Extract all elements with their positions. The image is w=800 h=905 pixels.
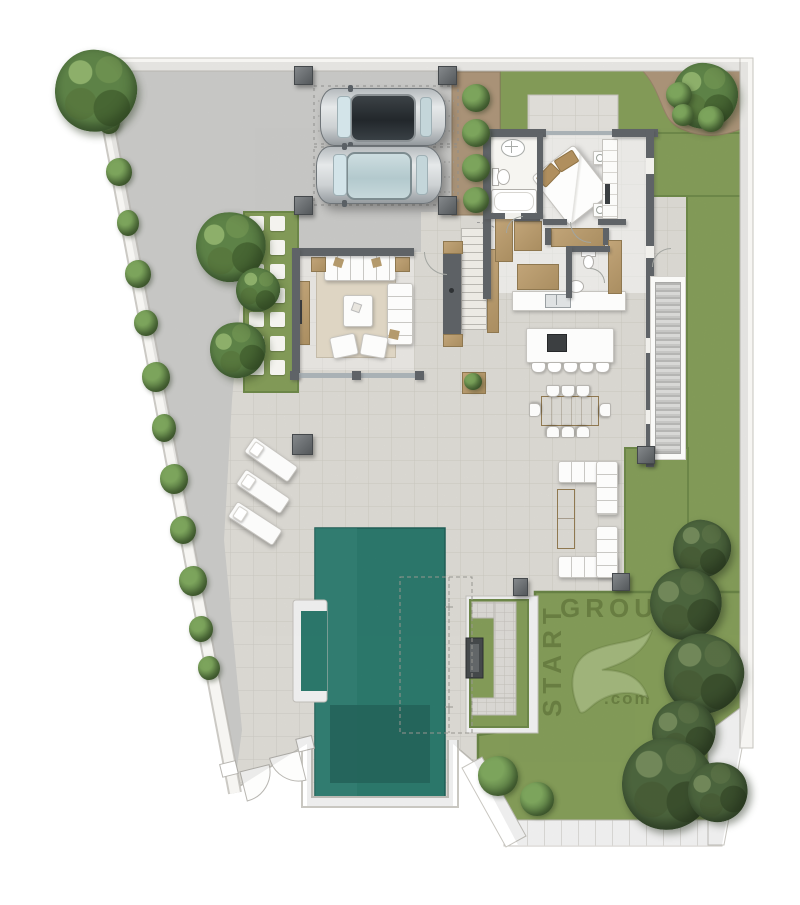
wc-west-wall bbox=[566, 246, 572, 298]
bedroom-tv bbox=[605, 184, 610, 204]
car-1 bbox=[320, 88, 446, 146]
hedge-bush bbox=[125, 260, 151, 288]
hedge-bush bbox=[117, 210, 139, 236]
carport-pillar bbox=[294, 196, 313, 215]
dining-chair bbox=[561, 426, 575, 438]
bathtub-inner bbox=[494, 192, 534, 211]
side-table bbox=[311, 257, 326, 272]
hedge-bush bbox=[152, 414, 176, 442]
toilet-bowl bbox=[497, 169, 510, 185]
patio-pillar bbox=[292, 434, 313, 455]
garden-bush bbox=[698, 106, 724, 132]
glass-wall-post bbox=[415, 371, 424, 380]
fireplace-cabinet bbox=[443, 334, 463, 347]
outdoor-sofa bbox=[596, 461, 618, 515]
stepping-stone bbox=[270, 216, 285, 231]
wc-north-wall bbox=[566, 246, 610, 252]
car-1-windshield bbox=[337, 96, 351, 138]
planter-bush bbox=[462, 154, 490, 182]
hall-closet bbox=[517, 264, 559, 290]
planter-bush bbox=[463, 187, 489, 213]
hedge-bush bbox=[160, 464, 188, 494]
garden-bush bbox=[520, 782, 554, 816]
carport-pillar bbox=[438, 66, 457, 85]
outdoor-sofa bbox=[596, 526, 618, 578]
louver-deck-slats bbox=[655, 282, 681, 454]
car-2-rear-window bbox=[416, 155, 428, 195]
carport-pillar bbox=[438, 196, 457, 215]
bedroom-south-wall-a bbox=[543, 219, 567, 225]
pergola-pillar bbox=[513, 578, 528, 596]
planter-bush bbox=[462, 119, 490, 147]
bathroom-east-wall bbox=[537, 133, 543, 217]
dining-chair bbox=[576, 426, 590, 438]
garden-bush bbox=[478, 756, 518, 796]
car-1-roof-glass bbox=[350, 94, 416, 142]
planter-bush bbox=[462, 84, 490, 112]
kitchen-island bbox=[526, 328, 614, 363]
dining-chair bbox=[546, 426, 560, 438]
hedge-bush bbox=[179, 566, 207, 596]
stepping-stone bbox=[270, 336, 285, 351]
bar-stool bbox=[547, 362, 562, 373]
car-2-mirror bbox=[342, 200, 347, 207]
island-cooktop bbox=[547, 334, 567, 352]
hedge-bush bbox=[142, 362, 170, 392]
patio-pillar bbox=[612, 573, 630, 591]
bedroom-glass-wall bbox=[546, 131, 614, 135]
stepping-stone bbox=[270, 240, 285, 255]
living-north-wall bbox=[292, 248, 414, 256]
dining-chair bbox=[561, 385, 575, 397]
glass-wall-post bbox=[290, 371, 299, 380]
wardrobe bbox=[602, 139, 618, 219]
floor-plan-page: GROUP START .com bbox=[0, 0, 800, 905]
east-window bbox=[646, 158, 654, 174]
car-2-windshield bbox=[333, 154, 347, 196]
dining-chair bbox=[576, 385, 590, 397]
living-west-wall bbox=[292, 248, 300, 378]
hedge-bush bbox=[198, 656, 220, 680]
car-2-mirror bbox=[342, 143, 347, 150]
bar-stool bbox=[563, 362, 578, 373]
louver-pillar bbox=[637, 446, 655, 464]
bar-stool bbox=[579, 362, 594, 373]
dining-table bbox=[541, 396, 599, 426]
sink-divider bbox=[556, 295, 557, 305]
outdoor-coffee-table bbox=[557, 489, 575, 549]
hedge-bush bbox=[134, 310, 158, 336]
closet-wall-cap bbox=[545, 228, 551, 245]
dining-chair bbox=[546, 385, 560, 397]
sink-cross bbox=[505, 146, 518, 147]
wc-toilet-bowl bbox=[583, 255, 594, 269]
hall-closet bbox=[608, 240, 622, 294]
glass-wall-post bbox=[352, 371, 361, 380]
car-1-mirror bbox=[348, 85, 353, 92]
dining-chair bbox=[529, 403, 541, 417]
armchair bbox=[359, 333, 388, 359]
car-2 bbox=[316, 146, 442, 204]
bar-stool bbox=[595, 362, 610, 373]
fireplace-knob bbox=[449, 288, 454, 293]
bar-stool bbox=[531, 362, 546, 373]
car-1-rear-window bbox=[420, 97, 432, 137]
stepping-stone bbox=[270, 360, 285, 375]
bathroom-sink bbox=[501, 139, 525, 157]
east-door-opening bbox=[646, 246, 654, 258]
sofa-cushion bbox=[388, 329, 400, 340]
sink-cross bbox=[511, 141, 512, 153]
hedge-bush bbox=[189, 616, 213, 642]
hedge-bush bbox=[170, 516, 196, 544]
bedroom-south-wall-b bbox=[598, 219, 626, 225]
carport-pillar bbox=[294, 66, 313, 85]
side-table bbox=[395, 257, 410, 272]
stepping-stone bbox=[270, 312, 285, 327]
car-2-roof-glass bbox=[346, 152, 412, 200]
garden-bush bbox=[672, 104, 694, 126]
hedge-bush bbox=[106, 158, 132, 186]
watermark-logo bbox=[558, 612, 658, 720]
dining-chair bbox=[599, 403, 611, 417]
planter-plant bbox=[464, 373, 482, 390]
